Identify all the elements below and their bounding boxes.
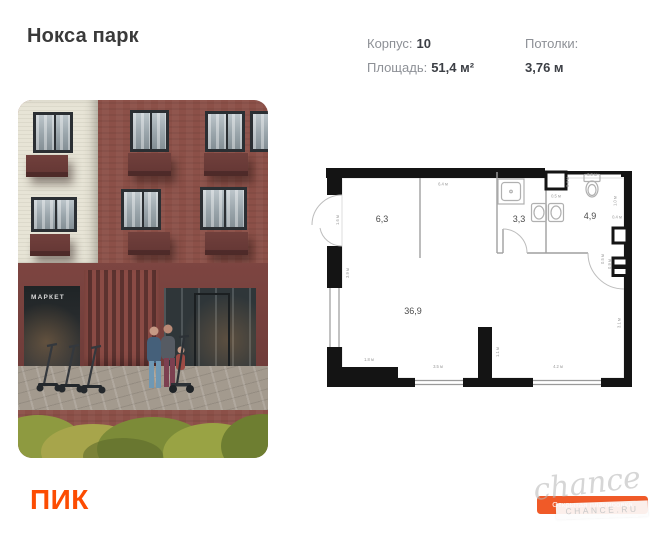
balcony-box	[26, 155, 68, 177]
balcony-box	[30, 234, 70, 256]
spec-ceiling-value: 3,76 м	[525, 60, 564, 75]
balcony-box	[128, 153, 171, 176]
window	[121, 189, 161, 230]
room-area-wc: 4,9	[584, 211, 597, 221]
dim-shaft-h: 0.4 м	[565, 177, 570, 187]
dim-bottom-left: 1.8 м	[364, 357, 374, 362]
dim-top: 6.4 м	[438, 182, 448, 187]
pedestrians	[147, 325, 185, 389]
dim-wc-w: 0.4 м	[612, 215, 622, 220]
dim-door49-b: 0.9 м	[607, 259, 612, 269]
window	[250, 111, 268, 152]
building-photo[interactable]: МАРКЕТ	[18, 100, 268, 458]
floorplan[interactable]: 6,3 3,3 4,9 36,9 6.4 м 1.6 м 3.9 м 1.8 м…	[292, 162, 632, 392]
area-label: Площадь:	[367, 60, 427, 75]
dim-stub: 1.1 м	[495, 347, 500, 357]
dim-right-low: 3.1 м	[617, 318, 622, 328]
spec-ceiling-label: Потолки:	[525, 36, 578, 51]
balcony-box	[204, 153, 248, 176]
dim-door49-a: 0.5 м	[600, 254, 605, 264]
scooter-wheels	[37, 383, 106, 394]
dim-wc-h: 1.0 м	[613, 196, 618, 206]
balcony-box	[205, 232, 248, 255]
dim-left: 3.9 м	[345, 268, 350, 278]
room-area-bathroom: 3,3	[513, 214, 526, 224]
balcony-box	[128, 232, 170, 255]
window	[205, 111, 245, 152]
street-scene	[18, 310, 268, 458]
korpus-value: 10	[417, 36, 431, 51]
page-title: Нокса парк	[27, 25, 139, 48]
area-value: 51,4 м²	[431, 60, 474, 75]
window	[31, 197, 77, 232]
dim-shaft-w: 0.5 м	[551, 194, 561, 199]
dim-wc-top: 0.9 м	[587, 172, 597, 177]
ceiling-value: 3,76 м	[525, 60, 564, 75]
spec-area: Площадь:51,4 м²	[367, 60, 474, 75]
ceiling-label: Потолки:	[525, 36, 578, 51]
korpus-label: Корпус:	[367, 36, 413, 51]
market-sign: МАРКЕТ	[31, 294, 65, 301]
room-area-living: 36,9	[404, 306, 422, 316]
listing-card: Нокса парк Корпус:10 Площадь:51,4 м² Пот…	[0, 0, 670, 558]
door-arcs	[312, 195, 624, 289]
window	[33, 112, 73, 153]
dim-entry: 1.6 м	[335, 215, 340, 225]
window	[200, 187, 247, 230]
window	[130, 110, 169, 152]
bushes	[18, 414, 268, 458]
spec-korpus: Корпус:10	[367, 36, 431, 51]
pik-logo: ПИК	[30, 484, 89, 516]
dim-bottom-mid: 3.5 м	[433, 364, 443, 369]
parked-scooters	[44, 344, 101, 386]
dim-bottom-right: 4.2 м	[553, 364, 563, 369]
room-area-hallway: 6,3	[376, 214, 389, 224]
outer-walls	[326, 168, 632, 387]
